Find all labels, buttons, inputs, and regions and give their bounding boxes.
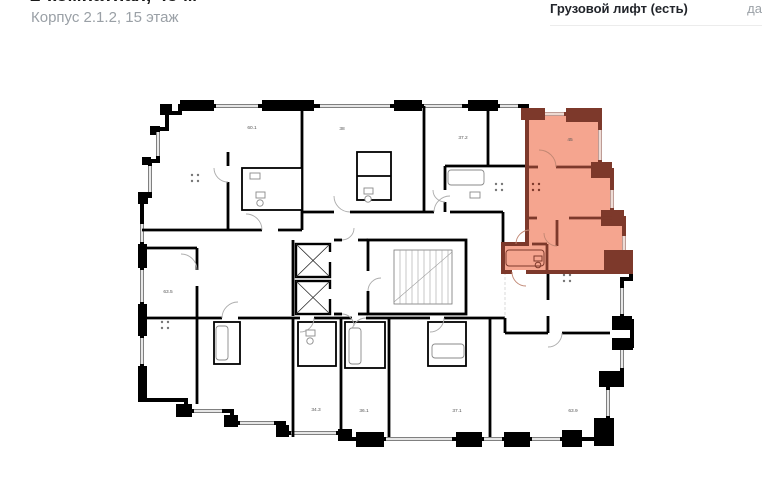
sink-icon (470, 192, 480, 198)
room-area-label: 37.1 (452, 408, 462, 414)
toilet-icon (306, 330, 315, 336)
toilet-icon (256, 192, 265, 198)
floor-plan: 60.1 38 37.2 45 63.5 34.3 36.1 37.1 63.9 (0, 0, 770, 500)
room-area-label: 36.1 (359, 408, 369, 414)
room-area-label: 34.3 (311, 407, 321, 413)
room-area-label: 63.5 (163, 289, 173, 295)
room-area-label-highlighted: 45 (567, 137, 573, 143)
bathtub-icon (448, 170, 484, 185)
sink-icon (250, 173, 260, 179)
room-area-label: 60.1 (247, 125, 257, 131)
room-area-label: 63.9 (568, 408, 578, 414)
room-area-label: 37.2 (458, 135, 468, 141)
bathtub-icon (216, 326, 228, 360)
core (296, 240, 466, 314)
bathtub-icon (432, 344, 464, 358)
toilet-icon (364, 188, 373, 194)
bathtub-icon (349, 328, 361, 364)
room-area-label: 38 (339, 126, 345, 132)
